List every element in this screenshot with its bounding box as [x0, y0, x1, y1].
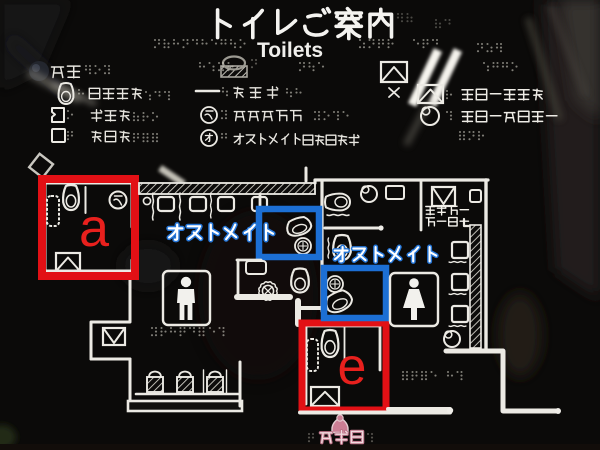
svg-text:Toilets: Toilets — [257, 39, 323, 62]
svg-text:a: a — [79, 198, 110, 258]
svg-text:e: e — [338, 338, 367, 396]
